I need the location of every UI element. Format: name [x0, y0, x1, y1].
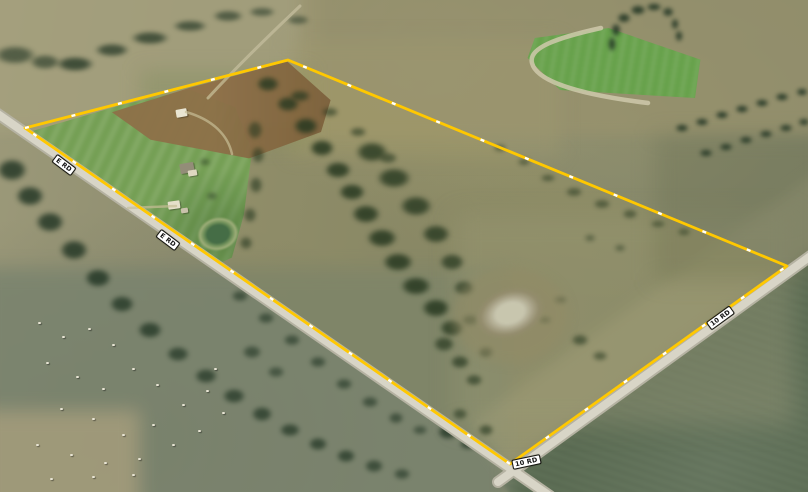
roads-and-boundary-overlay — [0, 0, 808, 492]
aerial-map-canvas[interactable]: E RD E RD 10 RD 10 RD — [0, 0, 808, 492]
field-access-track — [532, 28, 648, 103]
